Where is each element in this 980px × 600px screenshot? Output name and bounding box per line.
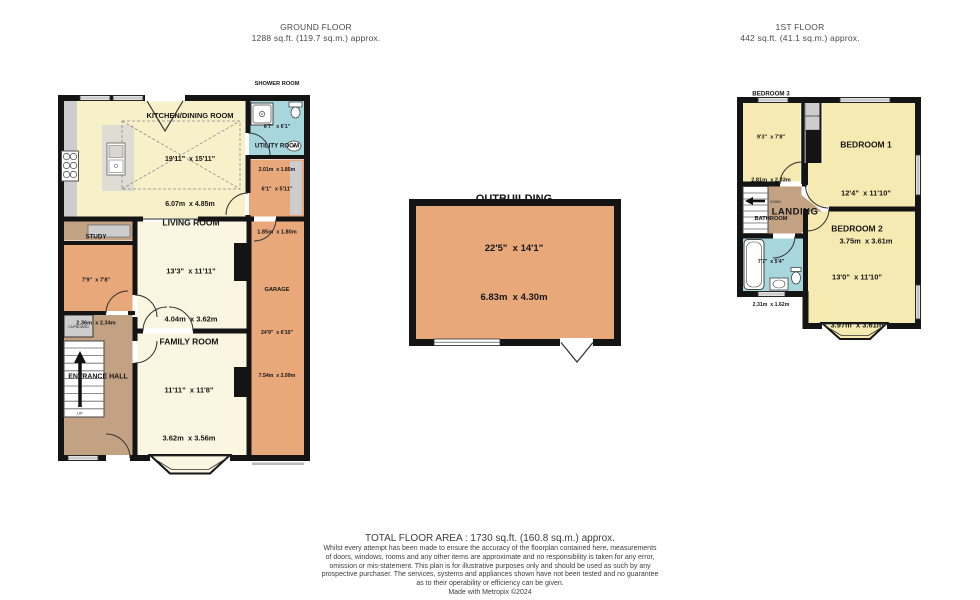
- hob-icon: [62, 151, 79, 181]
- sink-unit-icon: [107, 143, 125, 175]
- disclaimer-line: as to their operability or efficiency ca…: [0, 580, 980, 589]
- ground-floor-area: 1288 sq.ft. (119.7 sq.m.) approx.: [252, 33, 381, 43]
- ground-floor-header: GROUND FLOOR1288 sq.ft. (119.7 sq.m.) ap…: [252, 22, 381, 44]
- disclaimer-line: prospective purchaser. The services, sys…: [0, 571, 980, 580]
- chimney-breast: [806, 130, 821, 163]
- bedroom-2-label: BEDROOM 2 13'0" x 11'10" 3.97m x 3.61m: [831, 186, 884, 368]
- total-floor-area: TOTAL FLOOR AREA : 1730 sq.ft. (160.8 sq…: [0, 532, 980, 545]
- footer: TOTAL FLOOR AREA : 1730 sq.ft. (160.8 sq…: [0, 532, 980, 598]
- study-label: STUDY 7'9" x 7'8" 2.36m x 2.34m: [76, 197, 116, 363]
- garage-label: GARAGE 24'9" x 6'10" 7.54m x 2.09m: [259, 251, 296, 415]
- outbuilding-label: OUTBUILDING 22'5" x 14'1" 6.83m x 4.30m: [476, 156, 552, 340]
- disclaimer-line: of doors, windows, rooms and any other i…: [0, 554, 980, 563]
- first-floor-header: 1ST FLOOR442 sq.ft. (41.1 sq.m.) approx.: [740, 22, 860, 44]
- chimney-breast: [234, 367, 247, 397]
- floorplan-page: GROUND FLOOR1288 sq.ft. (119.7 sq.m.) ap…: [0, 0, 980, 600]
- outbuilding-door: [560, 338, 593, 362]
- ground-floor-title: GROUND FLOOR: [280, 22, 352, 32]
- utility-room-label: UTILITY ROOM 6'1" x 5'11" 1.85m x 1.80m: [255, 106, 299, 272]
- wardrobe-label: WARDROBE: [805, 114, 820, 118]
- garage-door: [252, 463, 304, 466]
- chimney-breast: [234, 243, 247, 281]
- toilet-icon: [791, 268, 801, 285]
- family-room-label: FAMILY ROOM 11'11" x 11'8" 3.62m x 3.56m: [159, 299, 218, 481]
- entrance-hall-label: ENTRANCE HALL: [68, 374, 128, 381]
- disclaimer-line: Whilst every attempt has been made to en…: [0, 545, 980, 554]
- up-label: UP: [77, 411, 83, 416]
- metropix-credit: Made with Metropix ©2024: [0, 589, 980, 598]
- first-floor-title: 1ST FLOOR: [776, 22, 825, 32]
- first-floor-area: 442 sq.ft. (41.1 sq.m.) approx.: [740, 33, 860, 43]
- bathroom-label: BATHROOM 7'7" x 5'4" 2.31m x 1.62m: [753, 180, 790, 344]
- disclaimer-line: omission or mis-statement. This plan is …: [0, 563, 980, 572]
